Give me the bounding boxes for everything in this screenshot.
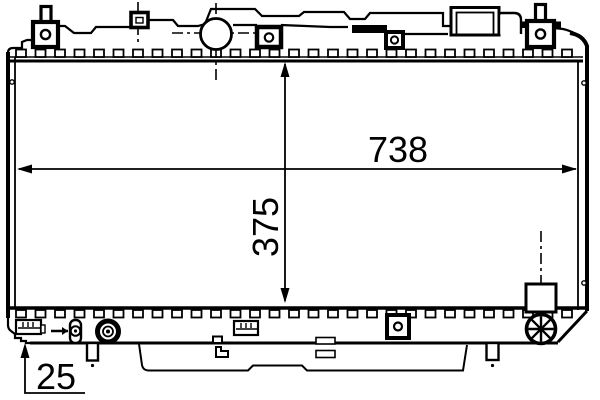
- drain-outlet-pipe: [87, 343, 98, 367]
- dimension-core-width: 738: [17, 129, 577, 174]
- side-tab-left: [10, 80, 14, 84]
- bottom-left-connector: [16, 320, 45, 334]
- dimension-label-offset: 25: [36, 356, 76, 397]
- technical-drawing-canvas: 738 375 25: [0, 0, 600, 400]
- core-top-strip: [9, 50, 583, 62]
- mounting-bracket-top-left: [33, 7, 58, 48]
- tank-seam-bar-left: [352, 25, 387, 33]
- side-tab-right-upper: [582, 81, 586, 85]
- rounded-tab: [499, 13, 521, 34]
- top-square-fitting: [131, 13, 148, 28]
- bolt-hole-icon: [41, 30, 50, 39]
- core-bottom-strip: [9, 308, 585, 318]
- bracket-pin-icon: [41, 7, 51, 23]
- dimension-tank-offset: 25: [21, 343, 86, 397]
- pad-bracket-mid-right: [386, 32, 403, 48]
- filler-neck-opening-icon: [201, 19, 232, 50]
- drain-plug: [98, 321, 119, 342]
- core-bottom-fin-teeth: [16, 310, 572, 318]
- dimension-label-width: 738: [368, 129, 428, 170]
- bottom-right-pin: [487, 343, 499, 367]
- bottom-slot-tab: [316, 338, 335, 358]
- arrowhead-right-icon: [562, 165, 577, 174]
- side-tab-right-lower: [582, 281, 586, 285]
- arrowhead-up-icon: [21, 343, 30, 358]
- bottom-center-connector: [234, 321, 258, 335]
- pad-bracket-bottom-right: [387, 315, 409, 338]
- top-right-reservoir-bracket: [451, 8, 521, 36]
- mounting-clip: [213, 337, 228, 358]
- drain-petcock: [51, 320, 81, 343]
- radiator-drawing: 738 375 25: [0, 0, 600, 400]
- pad-bracket-mid-left: [257, 27, 281, 47]
- core-side-plates: [8, 33, 587, 318]
- bolt-hole-icon: [391, 36, 398, 43]
- mounting-bracket-top-right: [527, 5, 554, 48]
- outlet-spokes: [528, 316, 554, 342]
- arrowhead-left-icon: [17, 165, 32, 174]
- lower-shroud-outline: [139, 344, 467, 371]
- bracket-pin-icon: [536, 5, 546, 22]
- centerlines: [138, 2, 541, 283]
- filler-neck: [201, 19, 232, 50]
- bolt-hole-icon: [394, 323, 402, 331]
- arrowhead-up-icon: [281, 62, 290, 77]
- bolt-hole-icon: [536, 29, 545, 38]
- petcock-stem-tip: [62, 327, 68, 335]
- dimension-core-height: 375: [245, 62, 290, 303]
- bolt-hole-icon: [265, 33, 273, 41]
- core-top-fin-teeth: [16, 50, 572, 58]
- arrowhead-down-icon: [281, 288, 290, 303]
- dimension-label-height: 375: [245, 197, 286, 257]
